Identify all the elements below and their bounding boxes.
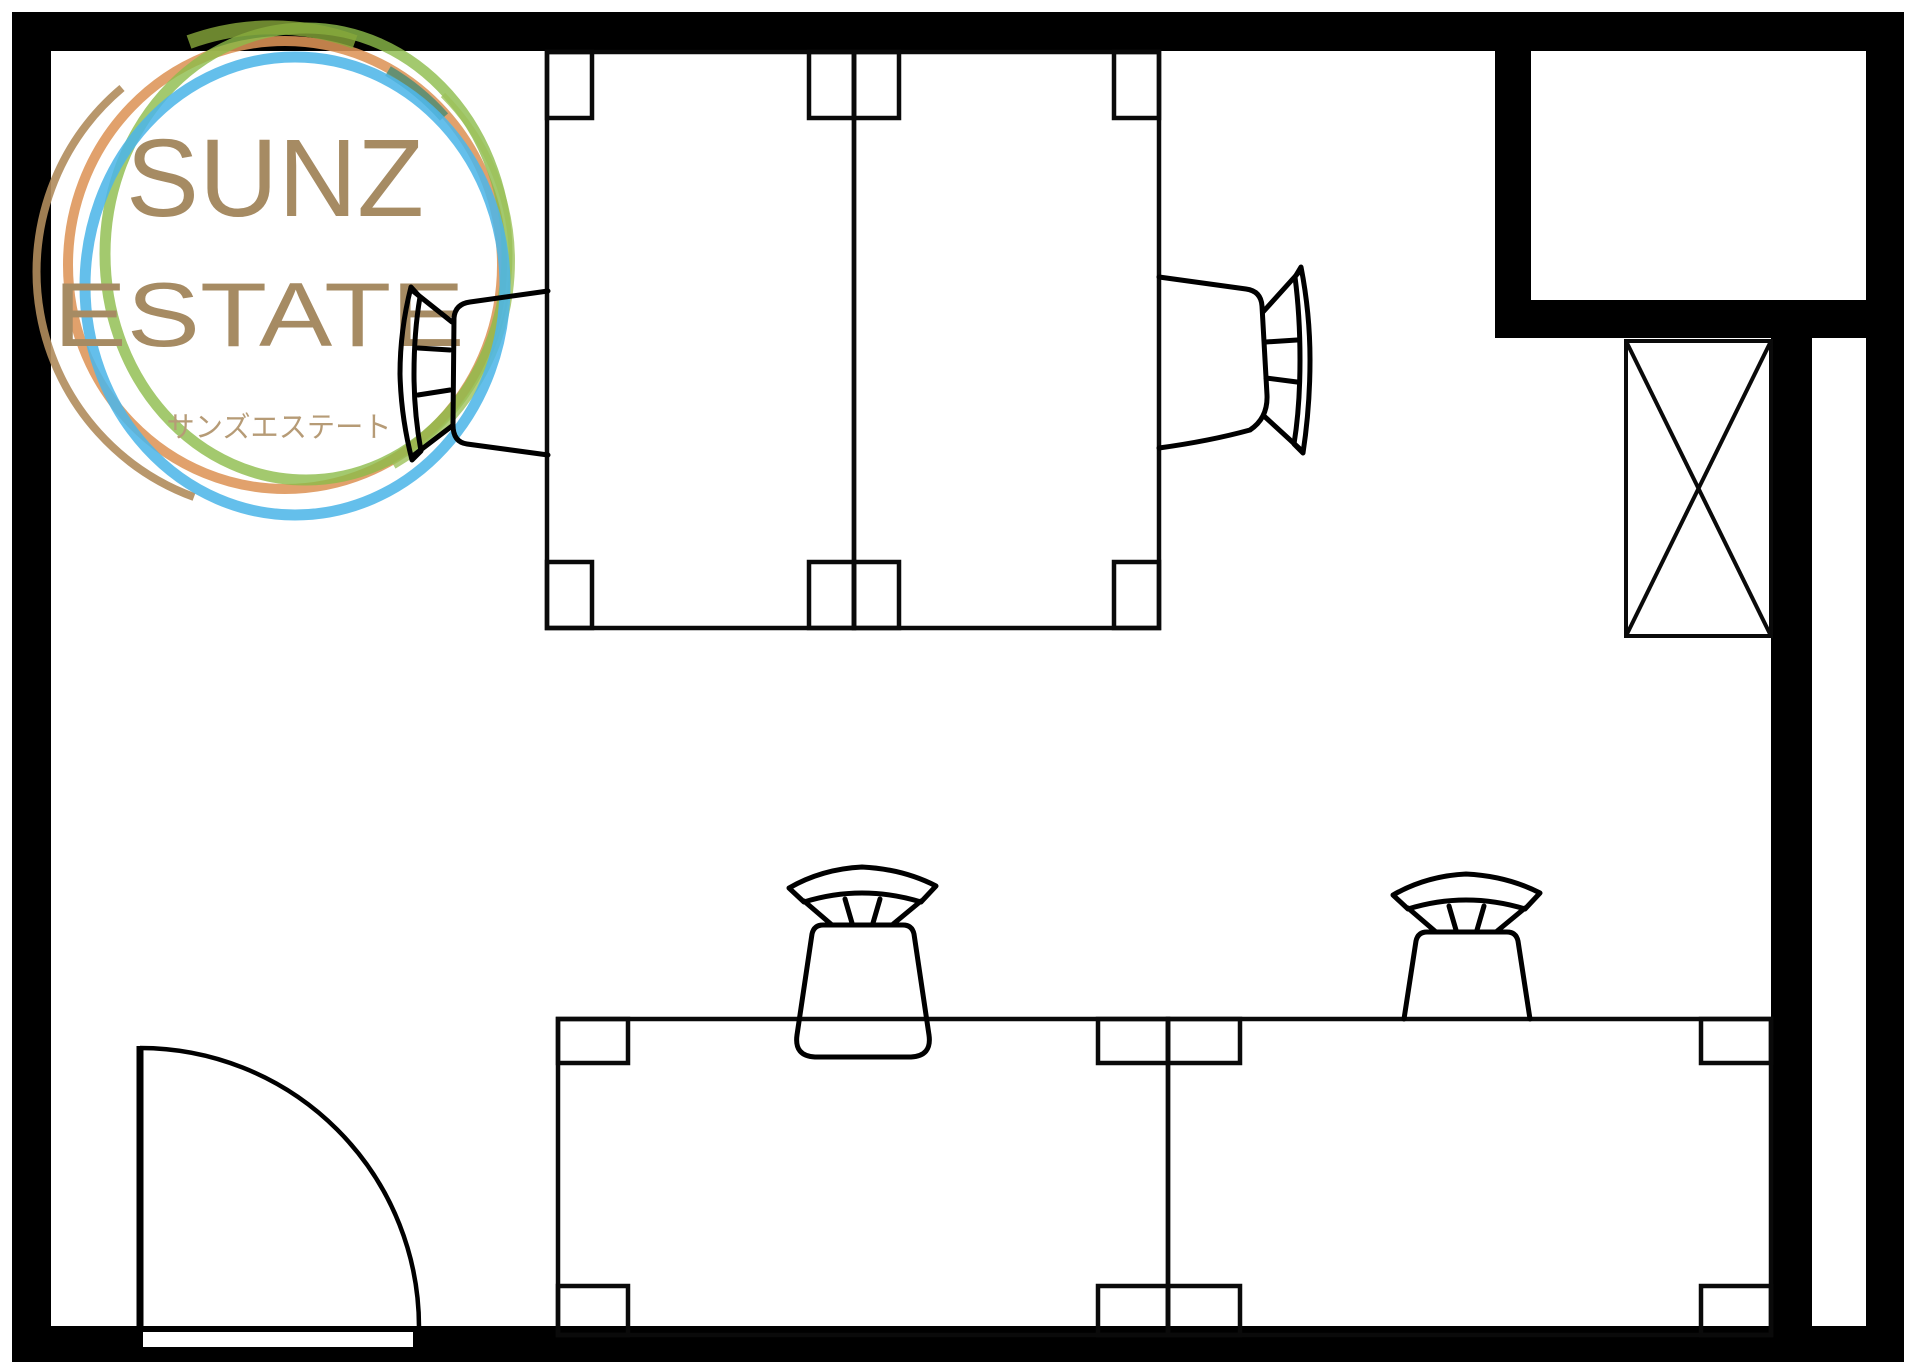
svg-text:SUNZ: SUNZ [126, 117, 424, 240]
svg-text:サンズエステート: サンズエステート [167, 411, 392, 444]
